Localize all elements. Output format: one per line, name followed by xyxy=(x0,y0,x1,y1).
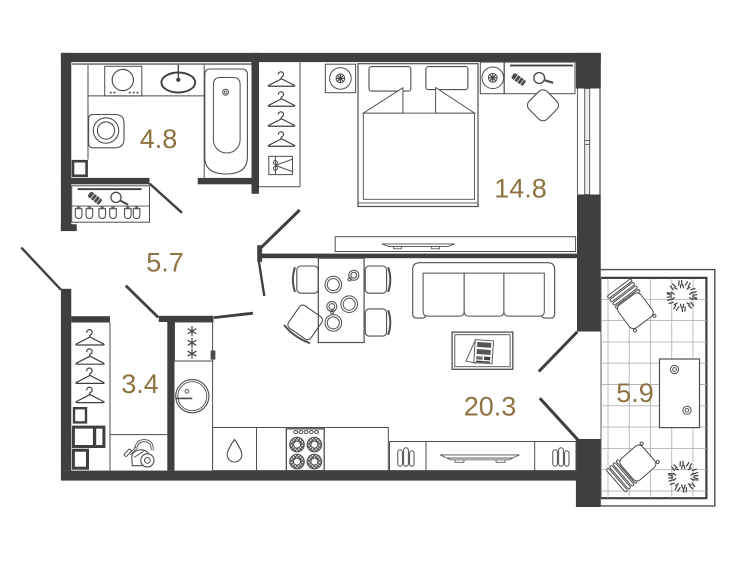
svg-text:5.7: 5.7 xyxy=(146,248,184,278)
svg-text:3.4: 3.4 xyxy=(121,369,159,399)
svg-text:20.3: 20.3 xyxy=(464,392,517,422)
svg-text:4.8: 4.8 xyxy=(140,124,178,154)
svg-text:5.9: 5.9 xyxy=(616,378,654,408)
svg-text:14.8: 14.8 xyxy=(494,173,547,203)
